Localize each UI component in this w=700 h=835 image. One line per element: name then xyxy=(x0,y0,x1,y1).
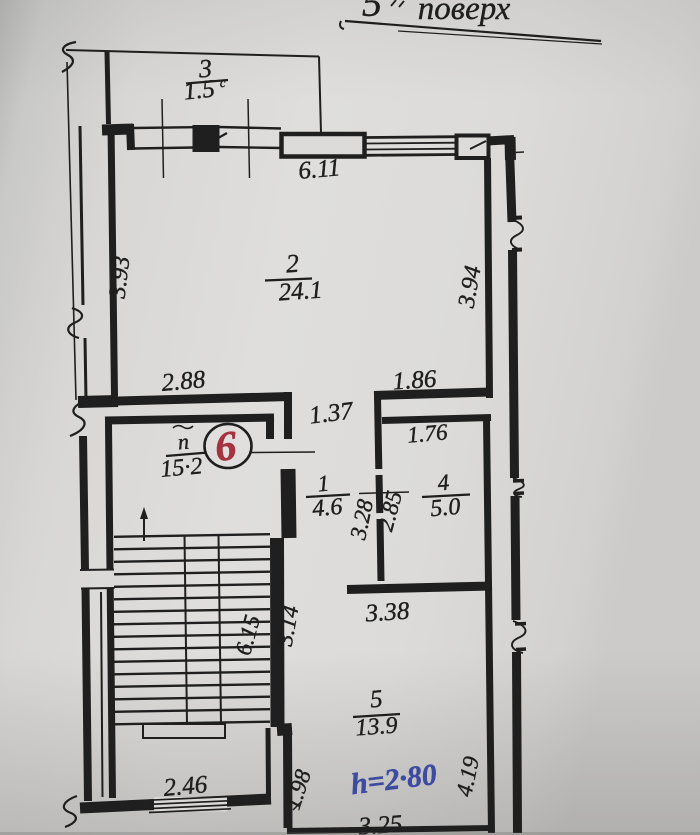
svg-text:3.25: 3.25 xyxy=(357,811,404,835)
svg-text:6: 6 xyxy=(213,423,238,471)
svg-text:3.93: 3.93 xyxy=(104,255,135,301)
svg-text:2: 2 xyxy=(285,249,300,279)
svg-text:1: 1 xyxy=(317,471,331,497)
svg-text:1.76: 1.76 xyxy=(406,419,449,447)
svg-text:5.0: 5.0 xyxy=(429,494,461,523)
svg-text:1.5: 1.5 xyxy=(182,75,216,105)
svg-text:13.9: 13.9 xyxy=(355,713,399,742)
svg-text:5: 5 xyxy=(369,686,384,714)
svg-text:п: п xyxy=(177,429,190,455)
svg-text:5: 5 xyxy=(362,0,382,25)
svg-text:3.38: 3.38 xyxy=(364,597,411,627)
svg-text:4.6: 4.6 xyxy=(311,494,343,523)
svg-text:2.46: 2.46 xyxy=(162,771,208,802)
svg-text:24.1: 24.1 xyxy=(278,277,324,307)
svg-text:4: 4 xyxy=(437,470,451,496)
svg-text:1.37: 1.37 xyxy=(308,397,356,429)
svg-text:15·2: 15·2 xyxy=(159,453,203,483)
svg-text:1.86: 1.86 xyxy=(392,365,438,395)
svg-text:поверх: поверх xyxy=(418,0,511,27)
svg-text:6.11: 6.11 xyxy=(297,154,341,185)
svg-text:2.88: 2.88 xyxy=(160,366,206,397)
